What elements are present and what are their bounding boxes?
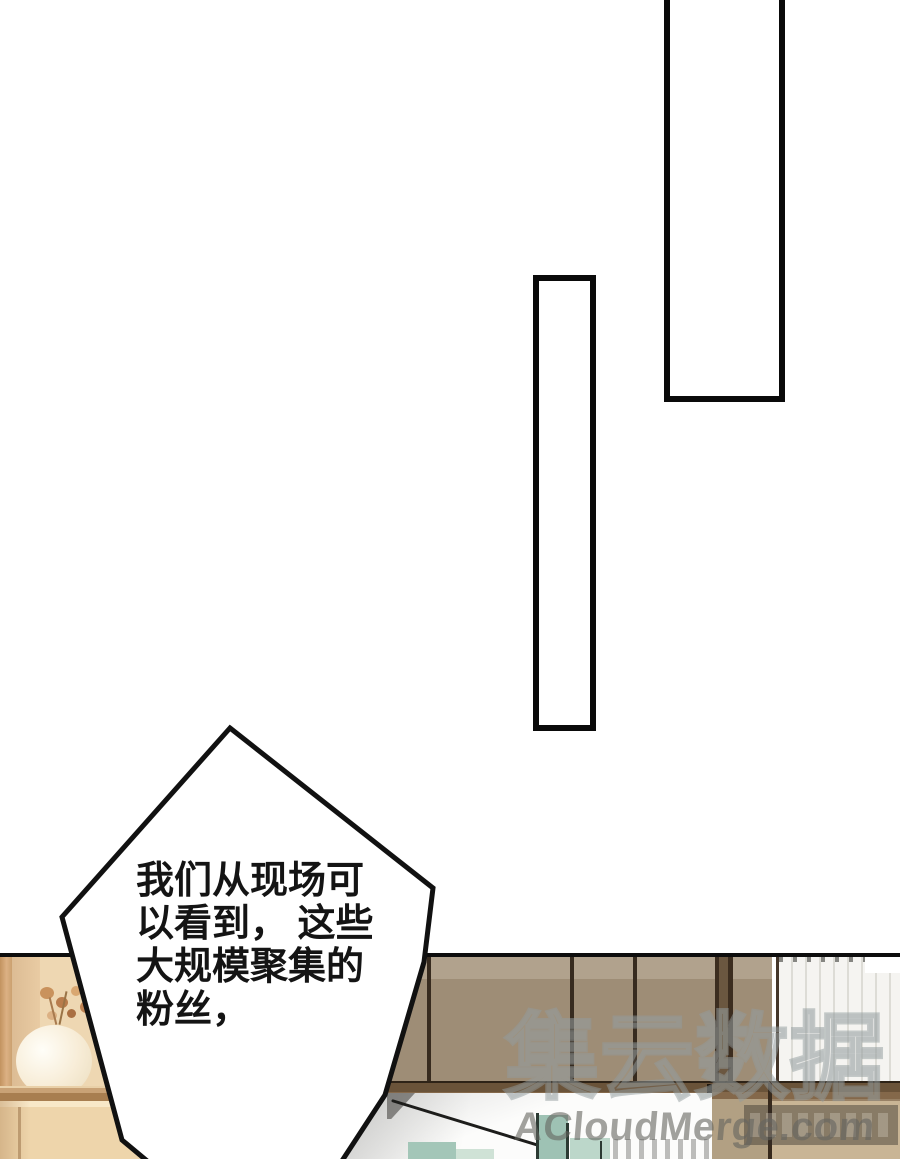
speech-bubble-text: 我们从现场可 以看到， 这些 大规模聚集的 粉丝，	[136, 860, 374, 1032]
bubble-text-line: 大规模聚集的	[136, 946, 374, 989]
comic-page: 集云数据 ACloudMerge.com 我们从现场可 以看到， 这些 大规模聚…	[0, 0, 900, 1159]
bubble-text-line: 我们从现场可	[136, 860, 374, 903]
bubble-text-line: 粉丝，	[136, 989, 374, 1032]
bubble-text-line: 以看到， 这些	[136, 903, 374, 946]
speech-bubble	[0, 0, 900, 1159]
